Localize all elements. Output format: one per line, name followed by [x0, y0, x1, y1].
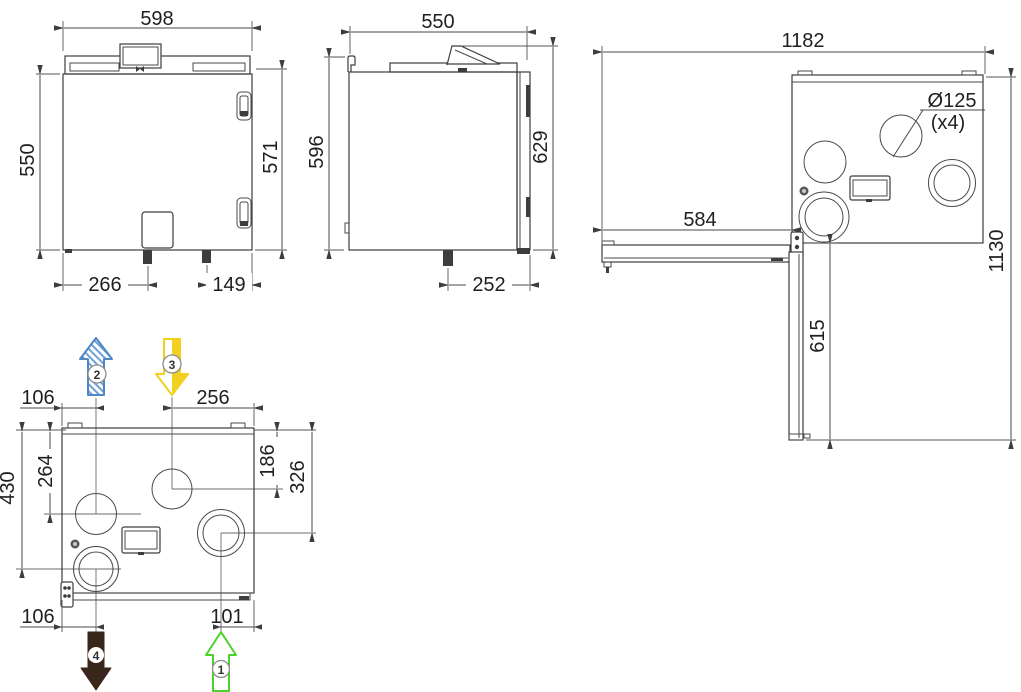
- front-view: 598 550 571 266 149: [17, 8, 287, 296]
- dim-side-depth: 550: [421, 11, 454, 33]
- dim-door-width: 584: [683, 209, 716, 231]
- top-view-door-open: Ø125 (x4) 1182 584 1130 615: [602, 30, 1016, 440]
- dim-port2-y: 264: [35, 454, 57, 487]
- dim-total-width: 1182: [781, 30, 824, 52]
- dim-front-drain-right: 149: [212, 274, 245, 296]
- dim-front-height-right: 571: [260, 140, 282, 173]
- hinge-dot-3: [63, 594, 67, 598]
- airflow-arrow-1-icon: 1: [206, 632, 236, 691]
- drain-point-center: [802, 189, 806, 193]
- latch-top-detail: [240, 111, 248, 116]
- dim-port4-x: 106: [21, 606, 54, 628]
- arrow-1-number: 1: [218, 663, 225, 677]
- dim-front-height-left: 550: [17, 143, 39, 176]
- electrical-box-2-tick: [138, 552, 144, 555]
- dim-door-length: 615: [807, 319, 829, 352]
- dim-port1-y: 326: [287, 460, 309, 493]
- handle-block: [120, 44, 161, 68]
- door-screw-left: [604, 262, 611, 267]
- cabinet-top-2: [62, 428, 254, 593]
- dim-port1-x: 101: [210, 606, 243, 628]
- top-view-connections: 106 256 264 430 186 326 106 101: [0, 387, 316, 632]
- bottom-lip: [64, 593, 250, 600]
- side-tab: [345, 223, 349, 233]
- lip-mark: [239, 596, 249, 600]
- duct-diameter-label: Ø125: [928, 90, 977, 112]
- cabinet-side: [349, 72, 517, 250]
- latch-bottom-detail: [240, 221, 248, 226]
- dim-front-drain-left: 266: [88, 274, 121, 296]
- hinge-bracket-2: [61, 582, 73, 607]
- drain-point-2-center: [73, 542, 77, 546]
- duct-port-1-outer: [929, 160, 976, 207]
- lid-tab-right-2: [231, 423, 245, 428]
- rail-inset-right: [193, 63, 245, 71]
- technical-drawing: 598 550 571 266 149: [0, 0, 1021, 692]
- dim-port3-x: 256: [196, 387, 229, 409]
- duct-port-1-inner: [934, 165, 970, 201]
- dim-front-width: 598: [140, 8, 173, 30]
- hinge-dot-2: [67, 586, 71, 590]
- arrow-3-number: 3: [169, 358, 176, 372]
- dim-side-drain: 252: [472, 274, 505, 296]
- handle-side: [447, 46, 500, 65]
- duct-port-4-inner: [805, 198, 843, 236]
- electrical-box-tick: [866, 199, 872, 202]
- open-door-vertical: [789, 252, 803, 440]
- door-latch-mark-top: [526, 85, 530, 117]
- hinge-pin-1: [795, 236, 799, 240]
- airflow-arrow-4-icon: 4: [81, 632, 111, 690]
- door-end-tab: [602, 241, 614, 245]
- rail-inset-left: [70, 63, 119, 71]
- duct-port-4-outer: [799, 192, 849, 242]
- wall-bracket-hook: [348, 56, 355, 72]
- dim-side-height-right: 629: [530, 130, 552, 163]
- door-latch-mark-bottom: [526, 197, 530, 217]
- dim-port2-x: 106: [21, 387, 54, 409]
- drain-stub-side: [443, 250, 453, 266]
- door-screw-left-tip: [606, 267, 609, 273]
- airflow-arrow-3-icon: 3: [156, 339, 188, 395]
- open-door-horizontal: [602, 245, 790, 262]
- arrow-2-number: 2: [94, 368, 101, 382]
- hinge-dot-4: [67, 594, 71, 598]
- dim-port3-y: 186: [257, 444, 279, 477]
- lid-tab-left-2: [68, 423, 82, 428]
- dim-total-height: 1130: [986, 229, 1008, 272]
- foot-left: [65, 249, 72, 253]
- duct-quantity-label: (x4): [931, 112, 965, 134]
- hinge-pin-2: [795, 245, 799, 249]
- door-mark: [771, 258, 783, 261]
- dim-side-height-left: 596: [306, 135, 328, 168]
- inspection-panel: [142, 212, 173, 248]
- dim-port4-y: 430: [0, 471, 19, 504]
- arrow-4-number: 4: [93, 649, 100, 663]
- door-screw-bottom: [804, 434, 810, 438]
- hinge-dot-1: [63, 586, 67, 590]
- latch-bottom-inner: [240, 202, 248, 224]
- airflow-arrow-2-icon: 2: [80, 338, 112, 395]
- duct-port-2: [804, 141, 846, 183]
- side-view: 550 596 629 252: [306, 11, 558, 296]
- door-foot: [517, 248, 530, 254]
- drain-stub-right: [202, 250, 211, 263]
- drain-stub-left: [143, 250, 152, 264]
- technical-drawing-page: 598 550 571 266 149: [0, 0, 1021, 692]
